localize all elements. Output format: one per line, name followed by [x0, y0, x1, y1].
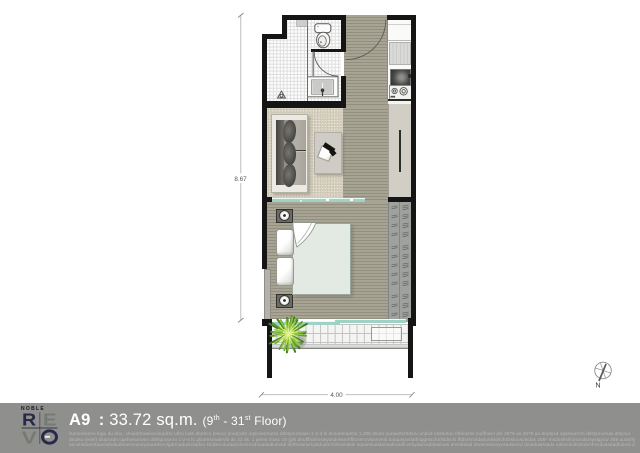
svg-text:N: N: [595, 381, 600, 390]
svg-text:4.00: 4.00: [330, 392, 343, 399]
svg-text:V: V: [22, 427, 38, 447]
svg-text:E: E: [43, 410, 57, 430]
svg-text:8.67: 8.67: [234, 176, 247, 183]
